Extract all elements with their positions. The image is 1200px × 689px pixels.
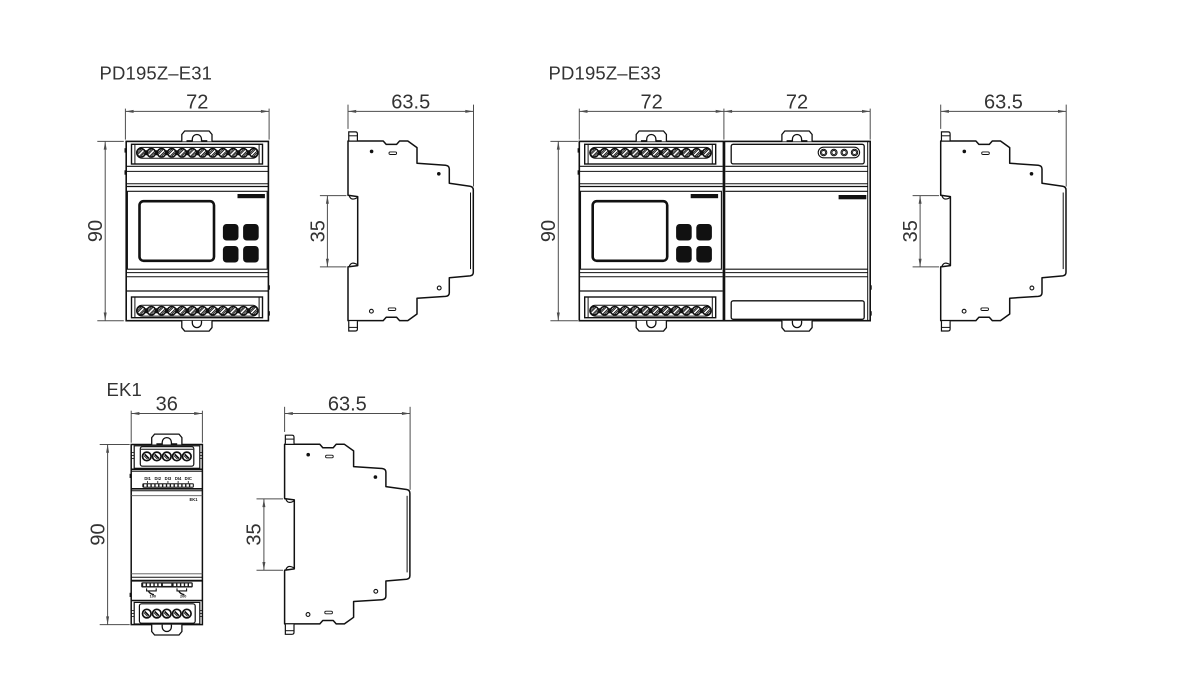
svg-text:90: 90 xyxy=(87,523,109,545)
svg-text:90: 90 xyxy=(85,220,107,242)
svg-text:PD195Z–E31: PD195Z–E31 xyxy=(100,63,213,84)
svg-text:63.5: 63.5 xyxy=(984,92,1023,114)
svg-text:200: 200 xyxy=(180,594,186,598)
svg-text:63.5: 63.5 xyxy=(391,92,430,114)
svg-text:72: 72 xyxy=(186,92,208,114)
svg-text:63.5: 63.5 xyxy=(328,394,367,416)
svg-text:72: 72 xyxy=(640,92,662,114)
svg-text:DI3: DI3 xyxy=(165,476,172,481)
svg-text:DI2: DI2 xyxy=(155,476,162,481)
svg-text:100: 100 xyxy=(150,594,156,598)
svg-text:DIC: DIC xyxy=(185,476,192,481)
svg-text:35: 35 xyxy=(244,523,266,545)
svg-text:DI4: DI4 xyxy=(175,476,182,481)
svg-text:72: 72 xyxy=(786,92,808,114)
svg-text:35: 35 xyxy=(900,220,922,242)
svg-text:DI1: DI1 xyxy=(144,476,151,481)
svg-text:EK1: EK1 xyxy=(107,379,142,400)
svg-text:36: 36 xyxy=(156,394,178,416)
svg-text:EK1: EK1 xyxy=(190,497,199,502)
svg-text:PD195Z–E33: PD195Z–E33 xyxy=(549,63,662,84)
svg-text:90: 90 xyxy=(538,220,560,242)
svg-text:35: 35 xyxy=(307,220,329,242)
